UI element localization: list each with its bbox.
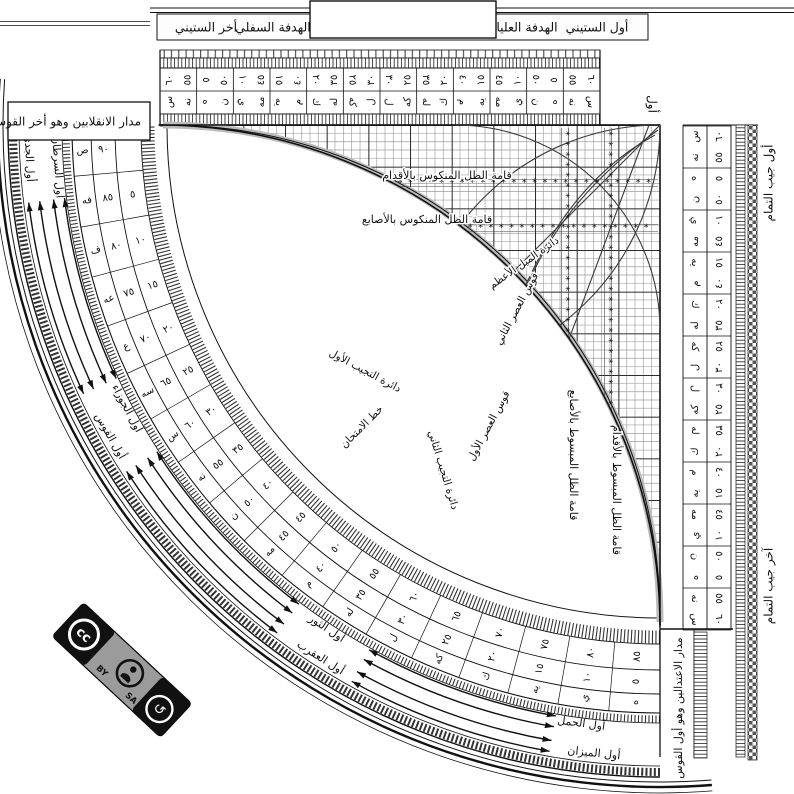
first-sixty-label: أول الستيني [566,19,629,36]
svg-text:أول الميزان: أول الميزان [567,743,621,762]
svg-text:٣٠: ٣٠ [714,362,725,373]
svg-text:٢٠: ٢٠ [713,299,724,310]
sine-first-label: دائرة التجيب الأول [327,346,404,395]
svg-text:٣٥: ٣٥ [713,425,724,436]
svg-text:٧٠: ٧٠ [139,332,153,346]
svg-text:٣٥: ٣٥ [354,588,369,603]
svg-text:فه: فه [81,195,93,207]
svg-text:ك: ك [690,447,701,455]
svg-text:له: له [329,98,340,106]
svg-text:٥٥: ٥٥ [567,75,578,86]
svg-text:ك: ك [439,98,450,106]
svg-text:ن: ن [689,553,700,560]
svg-text:له: له [690,321,701,329]
svg-text:ه: ه [200,99,211,104]
svg-text:٦٠: ٦٠ [585,75,596,86]
svg-text:٣٠: ٣٠ [366,75,377,86]
top-bar: أخر الستيني الهدفة السفلي الهدفة العليا … [0,1,794,40]
svg-text:٧٥: ٧٥ [539,638,552,651]
svg-text:٥: ٥ [631,679,642,685]
svg-text:س: س [690,130,701,142]
svg-text:٦٠: ٦٠ [407,590,422,605]
construction-lines: ****************************************… [160,125,660,628]
svg-text:مه: مه [493,97,504,108]
svg-text:ك: ك [480,671,493,682]
svg-text:٦٥: ٦٥ [159,375,174,390]
svg-text:له: له [689,426,700,434]
svg-text:ل: ل [387,632,400,644]
svg-text:٢٥: ٢٥ [714,404,725,415]
svg-text:م: م [293,99,304,105]
svg-text:٧٥: ٧٥ [122,286,136,300]
svg-text:م: م [690,280,701,286]
svg-text:أول الجدي: أول الجدي [22,134,38,182]
svg-text:١٠: ١٠ [134,234,147,247]
svg-text:ي: ي [237,98,248,106]
svg-text:******************************: ****************************************… [560,131,571,607]
equinox-label: مدار الاعتدالين وهو أول القوس [671,637,685,778]
svg-text:ي: ي [690,531,701,539]
svg-text:أول القوس: أول القوس [92,410,129,461]
svg-text:نه: نه [690,153,701,161]
svg-text:١٥: ١٥ [714,488,725,499]
svg-text:٦٠: ٦٠ [164,75,175,86]
svg-text:نه: نه [183,98,194,106]
sine-second-label: دائرة التجيب الثاني [425,429,461,511]
svg-text:نه: نه [689,594,700,602]
svg-text:١٥: ١٥ [146,279,160,293]
svg-text:٨٠: ٨٠ [110,240,123,253]
sight-tab [310,1,496,38]
svg-text:ل: ل [383,98,394,105]
svg-text:ك: ك [310,98,321,106]
svg-text:٥: ٥ [714,575,725,580]
svg-text:٨٥: ٨٥ [102,192,114,204]
svg-text:ه: ه [630,700,641,706]
svg-text:٣٠: ٣٠ [396,612,411,627]
svg-text:ع: ع [121,340,131,352]
svg-text:٩٠: ٩٠ [98,144,109,155]
svg-text:٤٥: ٤٥ [276,528,291,543]
svg-text:٦٥: ٦٥ [450,610,464,624]
svg-text:كه: كه [347,97,358,107]
svg-text:٥: ٥ [129,189,136,201]
svg-text:٤٥: ٤٥ [256,75,267,86]
svg-text:م: م [689,469,700,475]
equinox-strip: مدار الاعتدالين وهو أول القوس [660,625,707,779]
svg-text:ه: ه [549,99,560,104]
svg-text:٤٠: ٤٠ [714,278,725,289]
svg-text:٨٥: ٨٥ [632,651,643,662]
svg-text:٥٥: ٥٥ [183,75,194,86]
svg-text:٥٠: ٥٠ [714,194,725,205]
svg-text:٨٠: ٨٠ [585,646,597,658]
svg-text:ل: ل [366,98,377,105]
svg-text:٥٠: ٥٠ [242,494,257,509]
svg-text:٥٥: ٥٥ [211,457,226,472]
svg-text:٥: ٥ [200,77,211,82]
svg-text:ه: ه [689,176,700,181]
svg-text:ن: ن [219,98,230,105]
svg-text:٦٠: ٦٠ [183,417,198,432]
svg-text:١٠: ١٠ [582,671,594,683]
upper-sight-label: الهدفة العليا [496,20,557,36]
svg-text:ن: ن [530,98,541,105]
svg-text:٤٥: ٤٥ [714,236,725,247]
svg-text:٢٠: ٢٠ [714,446,725,457]
svg-text:٢٥: ٢٥ [181,364,196,379]
sine-quadrant-diagram: ٩٠ص٨٥فه٥٨٠ف١٠٧٥عه١٥٧٠ع٢٠٦٥سه٢٥٦٠س٣٠٥٥نه٣… [0,0,794,794]
svg-text:١٠: ١٠ [237,75,248,86]
svg-text:٦٠: ٦٠ [713,614,724,625]
svg-text:٥٠: ٥٠ [329,540,344,555]
solstice-box: مدار الانقلابين وهو أخر القوس [0,102,150,140]
svg-text:٥: ٥ [549,77,560,82]
svg-text:٥٠: ٥٠ [530,75,541,86]
svg-text:س: س [585,96,596,108]
svg-text:كه: كه [689,341,700,351]
svg-text:٢٠: ٢٠ [439,75,450,86]
svg-text:س: س [689,613,700,625]
svg-text:م: م [302,578,315,590]
svg-text:يه: يه [689,258,700,266]
cosine-end-label: آخر جيب التمام [761,547,777,624]
svg-text:٤٠: ٤٠ [457,75,468,86]
svg-text:كه: كه [403,97,414,107]
svg-text:٤٥: ٤٥ [293,510,308,525]
svg-text:نه: نه [195,470,208,484]
svg-text:٢٠: ٢٠ [486,650,500,664]
scale-start-word: أول [645,95,661,113]
svg-text:يه: يه [529,684,542,695]
svg-text:٢٠: ٢٠ [162,322,176,336]
svg-text:مه: مه [256,97,267,108]
svg-text:٣٥: ٣٥ [420,75,431,86]
asr-first-label: قوس العصر الأول [465,388,513,463]
test-line-label: خط الامتحان [338,403,386,451]
svg-text:ن: ن [690,196,701,203]
cc-by-sa-badge[interactable]: cc BY ↺ SA [52,603,192,738]
cosine-start-label: أول جيب التمام [761,145,777,222]
svg-text:مه: مه [690,236,701,247]
svg-text:ص: ص [76,145,89,157]
svg-text:يه: يه [273,98,284,106]
svg-text:ل: ل [690,364,701,371]
svg-text:له: له [343,606,357,619]
svg-text:س: س [164,96,175,108]
svg-text:ف: ف [90,244,103,257]
digit-reversed-label: قامة الظل المنكوس بالأصابع [362,212,492,226]
svg-text:٤٠: ٤٠ [293,75,304,86]
last-sixty-label: أخر الستيني [175,19,237,36]
svg-text:ي: ي [689,217,700,225]
svg-text:١٥: ١٥ [533,662,546,675]
svg-text:٥٥: ٥٥ [714,152,725,163]
svg-text:٤٥: ٤٥ [713,509,724,520]
svg-text:١٠: ١٠ [714,530,725,541]
svg-text:يه: يه [476,98,487,106]
svg-text:ك: ك [689,300,700,308]
svg-text:٢٠: ٢٠ [310,75,321,86]
svg-text:٤٠: ٤٠ [314,560,329,575]
svg-text:١٠: ١٠ [513,75,524,86]
svg-text:٧٠: ٧٠ [494,626,508,640]
svg-text:٣٠: ٣٠ [713,383,724,394]
solstice-label: مدار الانقلابين وهو أخر القوس [0,114,141,130]
svg-text:٢٥: ٢٥ [403,75,414,86]
digit-extended-label: قامة الظل المبسوط بالأصابع [567,390,581,521]
svg-text:٢٥: ٢٥ [713,341,724,352]
svg-text:نه: نه [567,98,578,106]
top-sexagesimal-scale: ٦٠س٥٥نه٥ه٥٠ن١٠ي٤٥مه١٥يه٤٠م٢٠ك٣٥له٢٥كه٣٠ل… [160,50,661,126]
quadrant-svg: ٩٠ص٨٥فه٥٨٠ف١٠٧٥عه١٥٧٠ع٢٠٦٥سه٢٥٦٠س٣٠٥٥نه٣… [0,0,794,794]
svg-text:١٠: ١٠ [713,215,724,226]
svg-text:٤٠: ٤٠ [260,477,275,492]
svg-text:كه: كه [432,652,446,666]
svg-text:م: م [457,99,468,105]
svg-text:٣٥: ٣٥ [231,442,246,457]
svg-text:عه: عه [102,292,116,306]
svg-text:٤٠: ٤٠ [713,467,724,478]
svg-text:٤٥: ٤٥ [493,75,504,86]
svg-text:٣٥: ٣٥ [329,75,340,86]
lower-sight-label: الهدفة السفلي [235,20,311,36]
svg-text:١٥: ١٥ [273,75,284,86]
svg-text:٣٠: ٣٠ [204,404,219,419]
svg-text:٥٥: ٥٥ [367,566,382,581]
svg-text:٥٠: ٥٠ [713,551,724,562]
svg-text:١٥: ١٥ [713,257,724,268]
svg-text:ي: ي [513,98,524,106]
svg-text:ل: ل [689,385,700,392]
svg-text:س: س [165,428,181,444]
foot-extended-label: قامة الظل المبسوط بالأقدام [610,425,624,555]
svg-text:ي: ي [579,693,591,702]
svg-text:أول السرطان: أول السرطان [49,135,67,198]
svg-text:ه: ه [690,575,701,580]
svg-text:يه: يه [690,489,701,497]
svg-text:مه: مه [689,509,700,520]
svg-text:له: له [420,98,431,106]
svg-text:٥٥: ٥٥ [713,593,724,604]
foot-reversed-label: قامة الظل المنكوس بالأقدام [382,168,512,182]
svg-text:٣٥: ٣٥ [714,320,725,331]
svg-text:كه: كه [690,404,701,414]
svg-text:سه: سه [139,384,156,400]
svg-text:١٥: ١٥ [476,75,487,86]
svg-text:أول الحمل: أول الحمل [557,713,606,733]
svg-text:٢٥: ٢٥ [440,633,454,647]
svg-text:٣٠: ٣٠ [383,75,394,86]
svg-text:مه: مه [262,544,277,559]
svg-text:٢٥: ٢٥ [347,75,358,86]
svg-text:٥٠: ٥٠ [219,75,230,86]
svg-text:ن: ن [228,509,241,522]
svg-text:٥: ٥ [713,176,724,181]
svg-text:٦٠: ٦٠ [714,131,725,142]
